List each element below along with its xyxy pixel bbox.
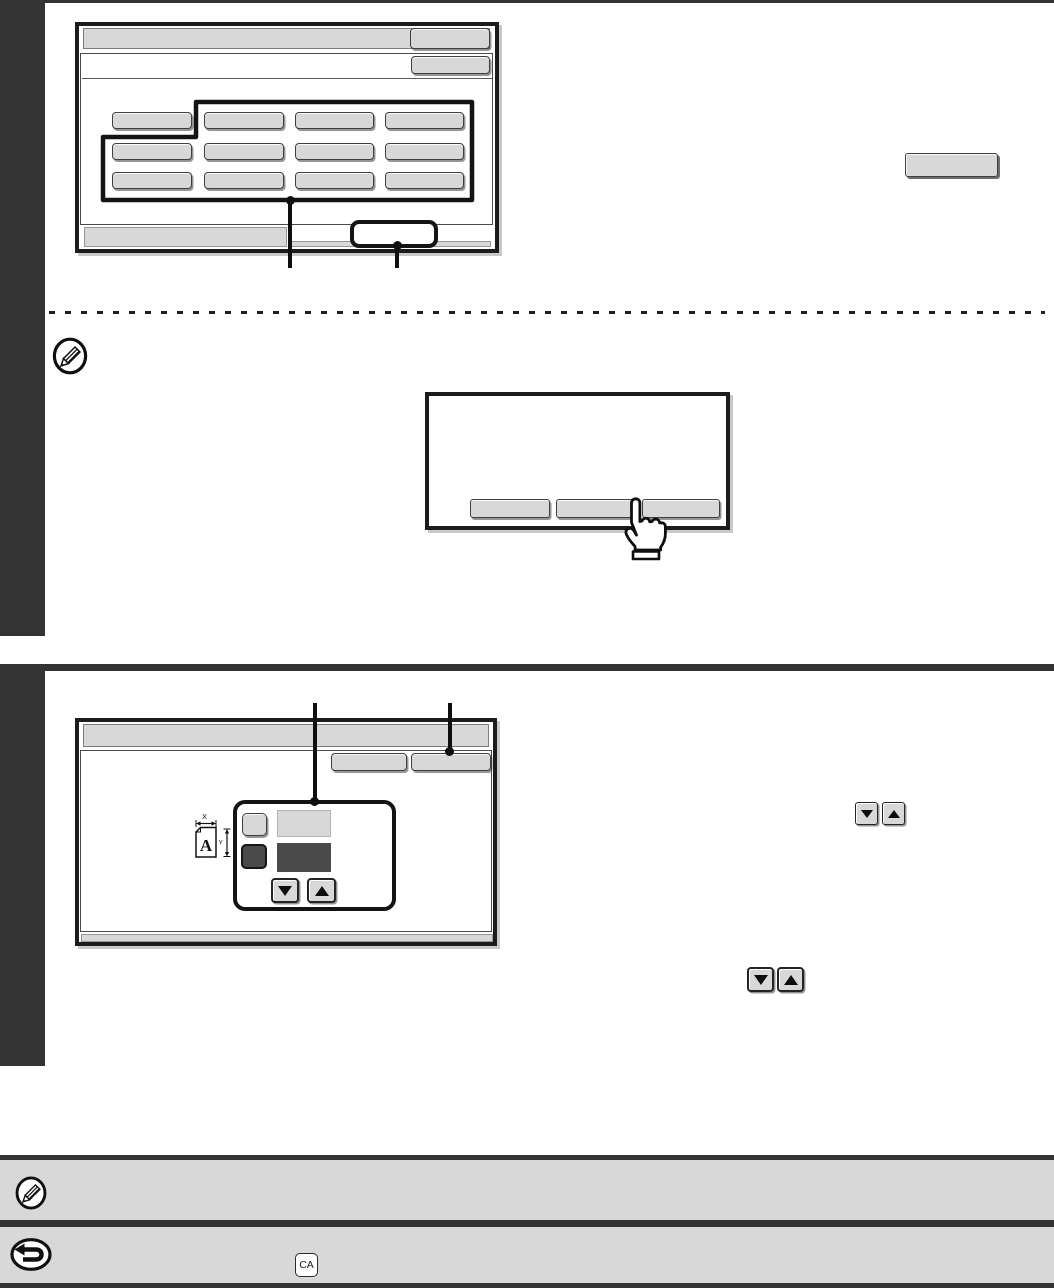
up-triangle-icon [888, 810, 900, 818]
up-triangle-icon [315, 886, 329, 896]
manual-page: X A Y [0, 0, 1054, 1288]
back-bar [0, 1227, 1054, 1283]
ca-key-label: CA [299, 1259, 314, 1271]
decrease-arrow-button[interactable] [747, 967, 774, 992]
callout-line [288, 202, 292, 268]
down-triangle-icon [861, 810, 873, 818]
screen2-header-button[interactable] [331, 753, 407, 771]
y-label: Y [219, 840, 224, 847]
down-triangle-icon [278, 886, 292, 896]
panel-top-field [277, 810, 331, 837]
screen1-divider [82, 78, 492, 79]
screen1-sub-button[interactable] [411, 56, 490, 74]
note-bar-rule [0, 1220, 1054, 1227]
note-bar-rule [0, 1283, 1054, 1288]
setting-panel [233, 800, 396, 911]
down-triangle-icon [754, 975, 768, 985]
callout-dot [445, 747, 454, 756]
screen1-header-button[interactable] [410, 28, 490, 49]
return-arrow-icon [10, 1238, 52, 1271]
pencil-icon [52, 337, 88, 375]
screen2-title-bar [83, 724, 489, 747]
sidebar-segment-1 [0, 0, 45, 636]
pencil-icon [10, 1176, 52, 1210]
x-label: X [202, 812, 207, 821]
popup-button[interactable] [470, 499, 550, 518]
screen2-dialog: X A Y [75, 718, 497, 946]
pointing-hand-icon [612, 497, 668, 563]
increase-arrow-button[interactable] [307, 878, 336, 903]
panel-bottom-button[interactable] [241, 844, 267, 869]
callout-line [395, 249, 399, 268]
panel-bottom-field [277, 843, 331, 872]
callout-line [313, 703, 317, 802]
increase-arrow-button[interactable] [777, 967, 804, 992]
callout-line [448, 703, 452, 752]
increase-arrow-button[interactable] [882, 802, 905, 825]
section-rule [0, 664, 1054, 671]
sidebar-segment-2 [0, 664, 45, 1066]
popup-dialog [425, 392, 730, 530]
ca-key[interactable]: CA [295, 1253, 318, 1277]
decrease-arrow-button[interactable] [855, 802, 878, 825]
dotted-divider [49, 311, 1045, 314]
standalone-button[interactable] [905, 153, 998, 177]
screen1-footer-bar [84, 227, 287, 247]
decrease-arrow-button[interactable] [271, 878, 299, 903]
note-bar [0, 1160, 1054, 1220]
page-letter: A [200, 836, 213, 855]
up-triangle-icon [784, 975, 798, 985]
highlight-outline [100, 99, 475, 203]
screen2-footer-thin [81, 934, 493, 942]
panel-top-button[interactable] [242, 813, 267, 836]
top-rule [0, 0, 1054, 3]
screen1-dialog [75, 22, 499, 253]
callout-dot [310, 797, 319, 806]
document-size-xy-icon: X A Y [195, 810, 233, 860]
